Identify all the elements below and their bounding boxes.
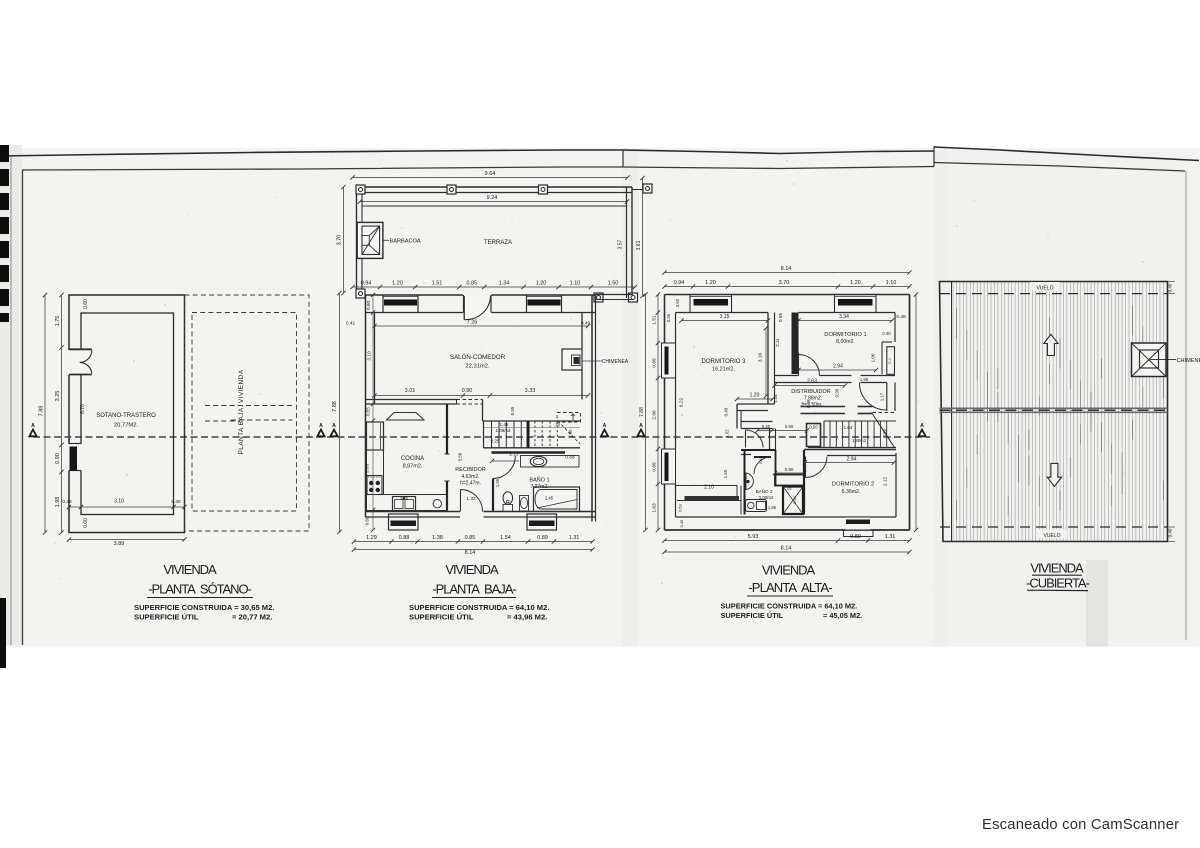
svg-text:0.85: 0.85 — [465, 535, 476, 541]
svg-text:9.64: 9.64 — [485, 171, 496, 177]
svg-text:2.10: 2.10 — [704, 485, 714, 491]
svg-text:0.60: 0.60 — [365, 516, 370, 525]
svg-text:TERRAZA: TERRAZA — [484, 240, 512, 246]
svg-text:3.03: 3.03 — [365, 464, 371, 474]
svg-text:0.88: 0.88 — [399, 535, 410, 541]
svg-text:3.01: 3.01 — [405, 388, 416, 394]
svg-text:SOTANO-TRASTERO: SOTANO-TRASTERO — [96, 413, 156, 419]
svg-text:8,87m2.: 8,87m2. — [403, 464, 423, 470]
svg-text:1.51: 1.51 — [432, 281, 443, 287]
svg-text:1.75: 1.75 — [55, 316, 61, 327]
svg-text:0.55: 0.55 — [366, 407, 371, 416]
svg-text:1.51: 1.51 — [652, 315, 658, 325]
svg-text:3.33: 3.33 — [525, 388, 536, 394]
svg-text:3.70: 3.70 — [337, 235, 343, 246]
svg-text:0.60: 0.60 — [83, 518, 89, 528]
svg-text:0.36: 0.36 — [666, 313, 671, 322]
svg-text:2.96: 2.96 — [652, 410, 658, 420]
svg-text:3.57: 3.57 — [618, 239, 624, 249]
svg-text:3.15: 3.15 — [720, 314, 730, 320]
svg-text:0.55: 0.55 — [778, 313, 784, 323]
svg-text:7.88: 7.88 — [39, 406, 45, 417]
svg-text:1.45: 1.45 — [500, 422, 509, 427]
svg-text:0.68: 0.68 — [565, 455, 575, 461]
svg-text:0.90: 0.90 — [55, 453, 61, 464]
svg-text:1.96: 1.96 — [860, 377, 869, 382]
svg-text:1.17: 1.17 — [880, 392, 885, 401]
svg-text:1,09m2: 1,09m2 — [495, 428, 511, 433]
svg-text:0.46: 0.46 — [679, 519, 684, 528]
svg-text:SUPERFICIE ÚTIL: SUPERFICIE ÚTIL — [721, 611, 784, 620]
svg-text:2,45: 2,45 — [545, 496, 554, 501]
svg-text:0,40: 0,40 — [1168, 528, 1173, 537]
svg-text:0.41: 0.41 — [346, 321, 356, 327]
svg-text:0.60: 0.60 — [675, 298, 680, 307]
svg-text:1.98: 1.98 — [55, 497, 61, 508]
svg-text:3.10: 3.10 — [367, 351, 373, 361]
svg-text:0,90: 0,90 — [882, 428, 887, 437]
svg-text:VUELO: VUELO — [1037, 286, 1054, 292]
svg-text:7,27m2.: 7,27m2. — [530, 484, 548, 490]
svg-text:0.90: 0.90 — [785, 467, 794, 472]
svg-text:8.14: 8.14 — [781, 546, 792, 552]
svg-text:1.63: 1.63 — [652, 503, 658, 513]
svg-text:1.20: 1.20 — [536, 281, 547, 287]
svg-text:-PLANTA ALTA-: -PLANTA ALTA- — [748, 580, 832, 595]
svg-text:1,80m2: 1,80m2 — [852, 438, 867, 443]
svg-text:.02: .02 — [786, 487, 791, 491]
svg-text:2.90: 2.90 — [568, 429, 573, 438]
svg-text:RECIBIDOR: RECIBIDOR — [455, 467, 486, 473]
svg-text:20,77M2.: 20,77M2. — [114, 423, 139, 429]
svg-text:PLANTA BAJA. VIVIENDA: PLANTA BAJA. VIVIENDA — [238, 369, 245, 454]
svg-text:2.11: 2.11 — [775, 338, 780, 347]
svg-text:C.1: C.1 — [888, 358, 892, 364]
svg-text:= 20,77 M2.: = 20,77 M2. — [232, 613, 272, 622]
svg-text:16,21m2.: 16,21m2. — [712, 367, 735, 373]
svg-text:1.33: 1.33 — [466, 496, 476, 502]
svg-text:6.22: 6.22 — [679, 398, 685, 408]
svg-text:0.95: 0.95 — [835, 388, 840, 397]
svg-text:BARBACOA: BARBACOA — [390, 238, 421, 244]
svg-text:0.90: 0.90 — [462, 388, 473, 394]
svg-text:1.02: 1.02 — [725, 429, 730, 438]
svg-text:VUELO: VUELO — [1044, 533, 1061, 539]
svg-text:6,36m2.: 6,36m2. — [842, 489, 861, 495]
svg-text:1.44: 1.44 — [773, 394, 778, 403]
svg-text:7.88: 7.88 — [332, 401, 338, 412]
svg-text:1.50: 1.50 — [608, 281, 619, 287]
svg-text:0.40: 0.40 — [171, 499, 181, 505]
svg-text:1.54: 1.54 — [500, 535, 511, 541]
svg-text:-PLANTA BAJA-: -PLANTA BAJA- — [432, 582, 516, 597]
svg-text:1.10: 1.10 — [570, 281, 581, 287]
svg-text:0.49: 0.49 — [724, 407, 729, 416]
svg-text:6.70: 6.70 — [80, 404, 86, 414]
svg-text:3.56: 3.56 — [458, 452, 463, 461]
svg-text:.70: .70 — [554, 423, 560, 428]
svg-text:SUPERFICIE ÚTIL: SUPERFICIE ÚTIL — [134, 613, 199, 622]
svg-text:2.12: 2.12 — [883, 477, 889, 487]
svg-text:SALÓN-COMEDOR: SALÓN-COMEDOR — [450, 354, 506, 361]
svg-text:0.25: 0.25 — [491, 439, 500, 444]
svg-text:0.50: 0.50 — [678, 503, 683, 512]
svg-text:2.94: 2.94 — [847, 457, 857, 463]
svg-text:1.55: 1.55 — [723, 469, 728, 478]
svg-text:DISTRIBUIDOR: DISTRIBUIDOR — [791, 389, 830, 395]
svg-text:1.31: 1.31 — [569, 535, 580, 541]
svg-text:0.89: 0.89 — [652, 462, 658, 472]
svg-text:1.20: 1.20 — [750, 393, 760, 399]
svg-text:0.60: 0.60 — [366, 301, 372, 311]
svg-text:DORMITORIO 3: DORMITORIO 3 — [702, 359, 747, 365]
svg-text:VIVIENDA: VIVIENDA — [445, 562, 499, 577]
svg-text:0.89: 0.89 — [850, 534, 861, 540]
svg-text:0,63: 0,63 — [759, 457, 763, 464]
svg-text:0.60: 0.60 — [83, 299, 89, 309]
svg-text:DORMITORIO 2: DORMITORIO 2 — [832, 482, 874, 488]
svg-text:3.70: 3.70 — [779, 280, 790, 286]
svg-text:-CUBIERTA-: -CUBIERTA- — [1026, 576, 1089, 591]
svg-text:7.26: 7.26 — [467, 320, 478, 326]
svg-text:1.20: 1.20 — [705, 280, 716, 286]
svg-text:-PLANTA SÓTANO-: -PLANTA SÓTANO- — [148, 582, 251, 597]
svg-text:5.93: 5.93 — [748, 534, 759, 540]
svg-text:DORMITORIO 1: DORMITORIO 1 — [824, 332, 866, 338]
svg-text:9.24: 9.24 — [487, 195, 498, 201]
svg-text:CHIMENEA: CHIMENEA — [1177, 358, 1200, 364]
svg-text:3.10: 3.10 — [114, 499, 124, 505]
svg-text:0.94: 0.94 — [361, 281, 372, 287]
svg-text:SUPERFICIE CONSTRUIDA = 30,65: SUPERFICIE CONSTRUIDA = 30,65 M2. — [134, 603, 274, 612]
svg-text:1.20: 1.20 — [392, 281, 403, 287]
svg-text:0.40: 0.40 — [882, 331, 891, 336]
svg-text:1.38: 1.38 — [432, 535, 443, 541]
svg-text:7.88: 7.88 — [639, 407, 645, 417]
svg-text:3.61: 3.61 — [636, 240, 642, 250]
svg-text:4,63m2.: 4,63m2. — [461, 474, 479, 480]
svg-text:= 45,05 M2.: = 45,05 M2. — [823, 611, 862, 620]
svg-text:1.29: 1.29 — [366, 535, 377, 541]
svg-text:1.34: 1.34 — [499, 281, 510, 287]
svg-text:BAÑO 2: BAÑO 2 — [756, 488, 773, 494]
svg-text:3.16: 3.16 — [758, 353, 764, 363]
svg-text:1.10: 1.10 — [886, 280, 897, 286]
svg-text:0.50: 0.50 — [809, 425, 818, 430]
svg-text:0.55: 0.55 — [510, 406, 515, 415]
svg-text:1.20: 1.20 — [850, 280, 861, 286]
svg-text:h=2,47m.: h=2,47m. — [460, 481, 481, 487]
svg-text:SUPERFICIE ÚTIL: SUPERFICIE ÚTIL — [409, 613, 474, 622]
svg-text:0.89: 0.89 — [537, 535, 548, 541]
svg-text:3.25: 3.25 — [55, 391, 61, 402]
svg-text:SUPERFICIE CONSTRUIDA = 64,10: SUPERFICIE CONSTRUIDA = 64,10 M2. — [721, 602, 858, 611]
svg-text:2.94: 2.94 — [833, 364, 843, 370]
svg-text:1.06: 1.06 — [871, 353, 876, 362]
svg-text:Escaneado con CamScanner: Escaneado con CamScanner — [982, 817, 1179, 833]
svg-text:BAÑO 1: BAÑO 1 — [529, 477, 549, 484]
svg-text:1.31: 1.31 — [885, 534, 896, 540]
svg-text:3.89: 3.89 — [114, 541, 125, 547]
svg-text:VIVIENDA: VIVIENDA — [163, 562, 217, 577]
svg-text:0.89: 0.89 — [652, 358, 658, 368]
svg-text:0.38: 0.38 — [62, 499, 72, 505]
svg-text:0,40: 0,40 — [1168, 283, 1173, 292]
svg-text:0.85: 0.85 — [466, 281, 477, 287]
svg-text:1,96: 1,96 — [495, 478, 500, 487]
svg-text:COCINA: COCINA — [401, 456, 424, 462]
svg-text:8,00m2.: 8,00m2. — [836, 339, 855, 345]
svg-text:2.63: 2.63 — [807, 379, 817, 385]
svg-text:22,31m2.: 22,31m2. — [465, 364, 490, 370]
svg-text:2,76: 2,76 — [400, 496, 409, 501]
svg-text:1,95: 1,95 — [768, 505, 777, 510]
svg-text:8.14: 8.14 — [781, 266, 792, 272]
svg-text:VIVIENDA: VIVIENDA — [762, 563, 816, 578]
svg-text:VIVIENDA: VIVIENDA — [1030, 561, 1084, 576]
svg-text:3.34: 3.34 — [839, 314, 849, 320]
svg-text:SUPERFICIE CONSTRUIDA = 64,10: SUPERFICIE CONSTRUIDA = 64,10 M2. — [409, 603, 549, 612]
svg-text:= 43,96 M2.: = 43,96 M2. — [507, 613, 547, 622]
svg-text:0.49: 0.49 — [806, 399, 811, 408]
svg-text:CHIMENEA: CHIMENEA — [602, 359, 629, 365]
svg-text:0.49: 0.49 — [896, 314, 906, 320]
svg-text:2.12: 2.12 — [509, 452, 519, 458]
svg-text:8.14: 8.14 — [465, 550, 476, 556]
svg-text:1.64: 1.64 — [844, 425, 853, 430]
svg-text:0.94: 0.94 — [674, 280, 685, 286]
svg-text:0.90: 0.90 — [785, 424, 794, 429]
svg-text:0,60: 0,60 — [793, 496, 797, 503]
